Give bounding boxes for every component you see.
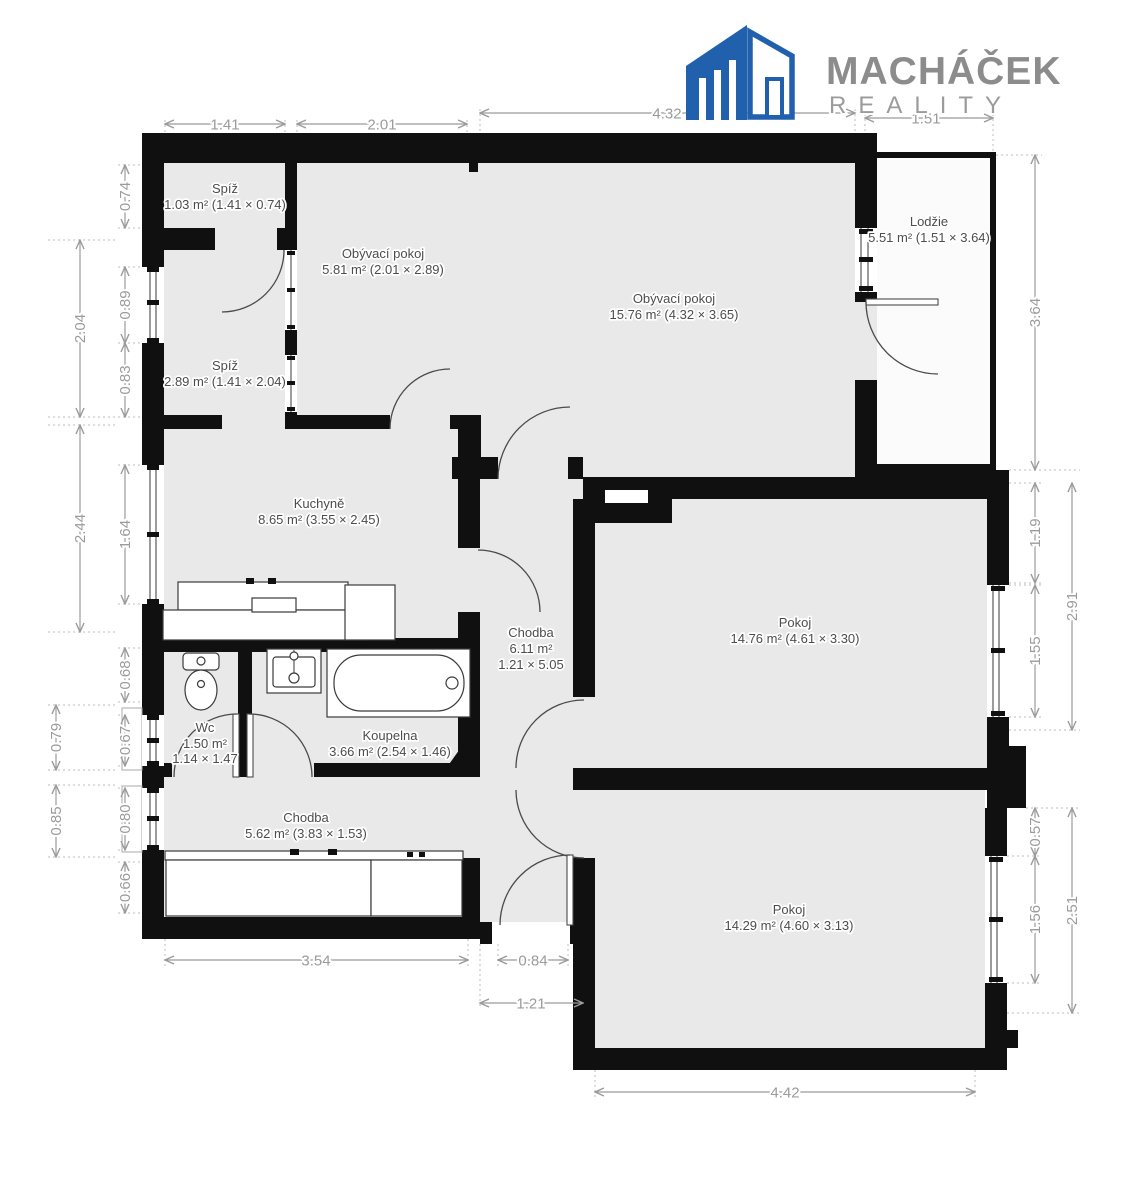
- dim-label: 1.41: [210, 117, 239, 134]
- dim-label: 0.74: [117, 182, 134, 211]
- floor-plan-page: 1.41 2.01 4.32 1.51 0.74 0.89 0.83 1.64 …: [0, 0, 1131, 1200]
- brand-name: MACHÁČEK: [826, 48, 1062, 93]
- room-area: 5.51 m² (1.51 × 3.64): [868, 230, 990, 245]
- room-name: Wc: [196, 720, 215, 735]
- room-area: 15.76 m² (4.32 × 3.65): [610, 307, 739, 322]
- dim-label: 0.89: [117, 290, 134, 319]
- dim-label: 0.57: [1027, 817, 1044, 846]
- dim-label: 0.68: [117, 660, 134, 689]
- door-leaf-koupelna: [247, 714, 253, 777]
- dim-label: 2.01: [367, 117, 396, 134]
- dim-label: 2.44: [72, 514, 89, 543]
- window-icon: [987, 585, 1009, 717]
- dim-label: 1.21: [516, 996, 545, 1013]
- dim-label: 3.54: [301, 953, 330, 970]
- dim-label: 4.32: [652, 106, 681, 123]
- kitchen-counter-icon: [163, 578, 395, 640]
- dim-label: 0.80: [117, 804, 134, 833]
- room-area: 14.29 m² (4.60 × 3.13): [725, 918, 854, 933]
- window-icon: [985, 856, 1007, 983]
- room-name: Spíž: [212, 181, 238, 196]
- interior-window-icon: [285, 250, 297, 330]
- dim-label: 2.91: [1064, 592, 1081, 621]
- interior-window-icon: [285, 355, 297, 412]
- dim-label: 0.85: [48, 806, 65, 835]
- room-name: Obývací pokoj: [633, 291, 715, 306]
- door-leaf-lodzie: [866, 299, 938, 305]
- sink-icon: [267, 649, 321, 693]
- floor-plan: 1.41 2.01 4.32 1.51 0.74 0.89 0.83 1.64 …: [0, 0, 1131, 1200]
- chimney-vent-slot: [605, 490, 648, 503]
- room-area: 2.89 m² (1.41 × 2.04): [164, 374, 286, 389]
- stove-icon: [252, 598, 296, 612]
- brand-subtitle: REALITY: [829, 92, 1013, 119]
- dim-label: 2.51: [1064, 896, 1081, 925]
- room-area: 6.11 m²: [509, 641, 553, 656]
- door-leaf-entry: [567, 855, 573, 925]
- window-icon: [142, 267, 164, 343]
- room-dims: 1.14 × 1.47: [172, 751, 237, 766]
- room-name: Pokoj: [773, 902, 806, 917]
- toilet-icon: [183, 653, 219, 710]
- dim-label: 4.42: [770, 1085, 799, 1102]
- room-name: Chodba: [508, 625, 554, 640]
- building-icon: [686, 25, 792, 120]
- room-name: Kuchyně: [294, 496, 345, 511]
- door-leaf-wc: [233, 714, 239, 777]
- dim-label: 0.84: [518, 953, 547, 970]
- room-name: Spíž: [212, 358, 238, 373]
- dim-label: 2.04: [72, 314, 89, 343]
- room-area: 8.65 m² (3.55 × 2.45): [258, 512, 380, 527]
- room-name: Chodba: [283, 810, 329, 825]
- logo: MACHÁČEK REALITY: [686, 25, 1062, 120]
- room-dims: 1.21 × 5.05: [498, 657, 563, 672]
- dim-label: 0.83: [117, 365, 134, 394]
- wardrobe-icon: [165, 849, 463, 916]
- dim-label: 1.56: [1027, 905, 1044, 934]
- dim-label: 1.19: [1027, 518, 1044, 547]
- dim-label: 0.67: [117, 726, 134, 755]
- room-area: 14.76 m² (4.61 × 3.30): [731, 631, 860, 646]
- dim-label: 0.66: [117, 873, 134, 902]
- lodzie-floor: [877, 158, 990, 464]
- dim-label: 3.64: [1027, 298, 1044, 327]
- room-name: Lodžie: [910, 214, 948, 229]
- room-area: 3.66 m² (2.54 × 1.46): [329, 744, 451, 759]
- dim-label: 1.55: [1027, 636, 1044, 665]
- window-icon: [142, 465, 164, 604]
- room-area: 5.62 m² (3.83 × 1.53): [245, 826, 367, 841]
- dim-label: 1.64: [117, 520, 134, 549]
- room-area: 1.03 m² (1.41 × 0.74): [164, 197, 286, 212]
- room-name: Pokoj: [779, 615, 812, 630]
- room-name: Koupelna: [363, 728, 419, 743]
- dim-label: 0.79: [48, 723, 65, 752]
- room-name: Obývací pokoj: [342, 246, 424, 261]
- room-area: 1.50 m²: [183, 736, 228, 751]
- room-area: 5.81 m² (2.01 × 2.89): [322, 262, 444, 277]
- bathtub-icon: [327, 649, 470, 717]
